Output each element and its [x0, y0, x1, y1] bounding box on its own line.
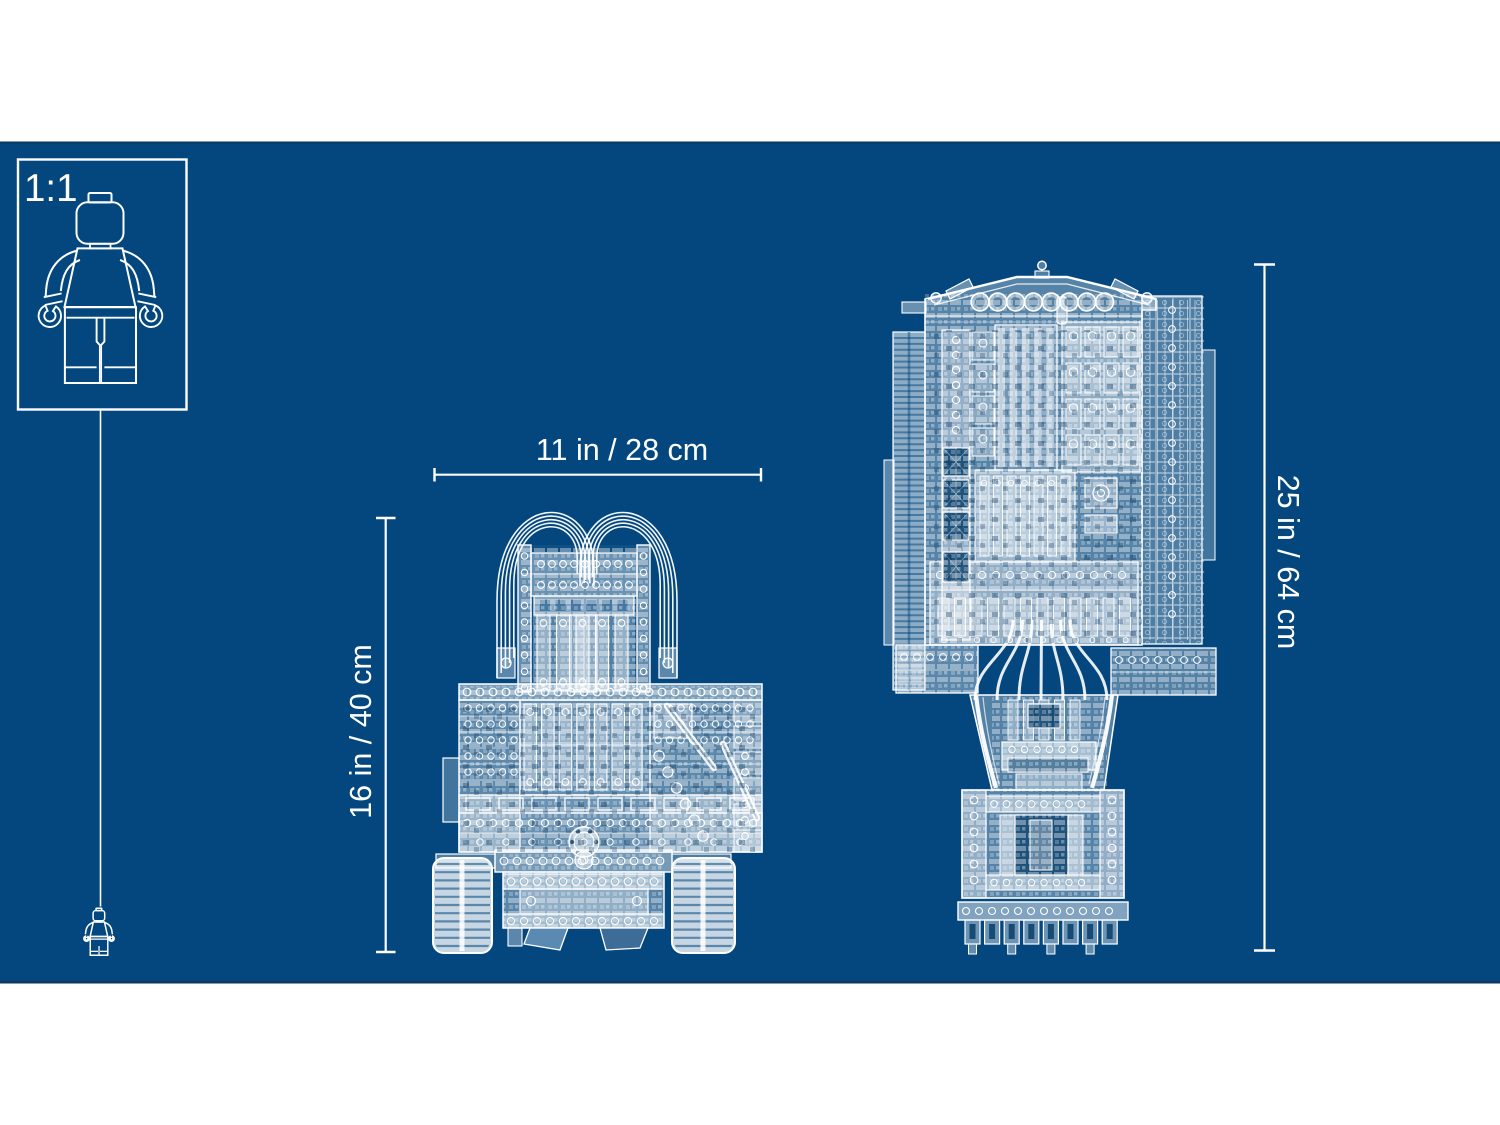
- svg-text:16 in / 40 cm: 16 in / 40 cm: [344, 644, 378, 819]
- svg-text:25 in / 64 cm: 25 in / 64 cm: [1271, 475, 1305, 650]
- svg-text:1:1: 1:1: [24, 167, 78, 210]
- svg-text:11 in / 28 cm: 11 in / 28 cm: [536, 433, 708, 467]
